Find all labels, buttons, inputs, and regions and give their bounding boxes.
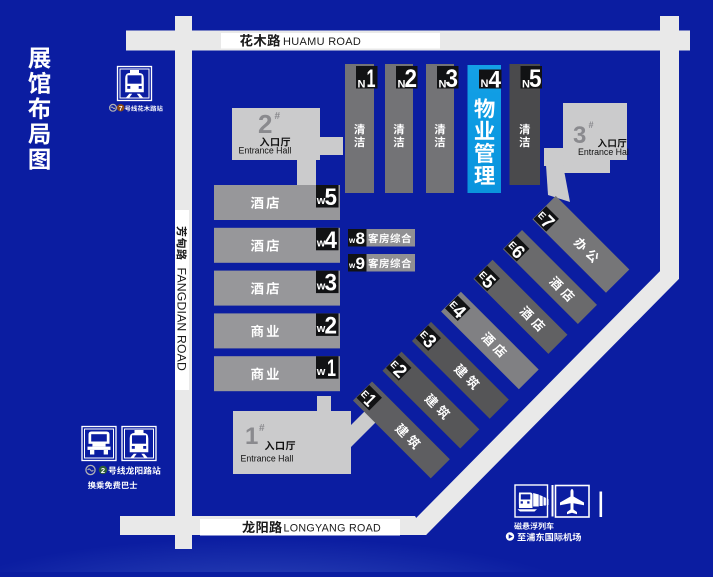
svg-text:2: 2 — [101, 466, 105, 475]
svg-text:4: 4 — [489, 67, 502, 94]
svg-text:5: 5 — [325, 184, 338, 211]
svg-text:Entrance Hall: Entrance Hall — [239, 146, 292, 156]
svg-text:3: 3 — [325, 270, 338, 297]
svg-text:2: 2 — [258, 109, 272, 139]
svg-text:#: # — [259, 423, 265, 434]
svg-text:7: 7 — [119, 105, 123, 112]
svg-text:2: 2 — [405, 65, 418, 93]
svg-text:Entrance Hall: Entrance Hall — [241, 453, 294, 463]
svg-text:4: 4 — [325, 227, 338, 254]
svg-text:N: N — [481, 78, 489, 90]
svg-text:9: 9 — [356, 254, 366, 273]
svg-text:N: N — [358, 79, 366, 91]
svg-text:w: w — [316, 366, 326, 378]
svg-text:1: 1 — [367, 65, 376, 93]
svg-text:#: # — [589, 120, 594, 130]
svg-text:#: # — [275, 111, 281, 122]
svg-text:LONGYANG ROAD: LONGYANG ROAD — [284, 523, 382, 535]
svg-text:1: 1 — [327, 355, 336, 382]
svg-text:3: 3 — [446, 65, 459, 93]
svg-text:FANGDIAN ROAD: FANGDIAN ROAD — [175, 268, 189, 372]
svg-text:Entrance Hal: Entrance Hal — [578, 147, 629, 157]
svg-text:8: 8 — [356, 229, 366, 248]
svg-text:3: 3 — [573, 122, 586, 149]
svg-text:2: 2 — [325, 312, 338, 339]
svg-text:5: 5 — [529, 65, 542, 93]
svg-text:HUAMU ROAD: HUAMU ROAD — [283, 36, 361, 48]
svg-text:1: 1 — [245, 423, 258, 450]
